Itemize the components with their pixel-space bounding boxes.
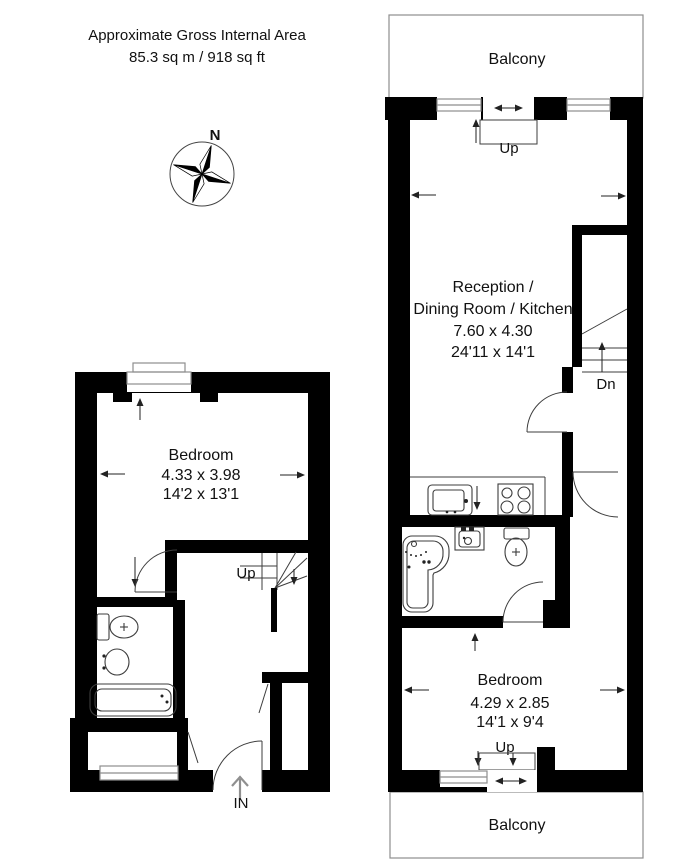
compass-north-label: N [210,127,221,144]
upper-bedroom-size-imperial: 14'1 x 9'4 [476,714,544,731]
header: Approximate Gross Internal Area 85.3 sq … [88,27,306,66]
reception-size-imperial: 24'11 x 14'1 [451,344,535,361]
floor-plan-page: Approximate Gross Internal Area 85.3 sq … [0,0,684,862]
balcony-top-label: Balcony [489,51,546,68]
balcony-door-up-label: Up [499,140,518,157]
balcony-door-top [476,97,537,144]
upper-bedroom-labels: Bedroom 4.29 x 2.85 14'1 x 9'4 Up [470,672,549,756]
gross-area-title: Approximate Gross Internal Area [88,27,306,44]
lower-basin [102,649,129,675]
reception-name-line1: Reception / [453,279,534,296]
upper-bath [403,536,449,612]
entrance-door [213,741,262,792]
lower-toilet [97,614,138,640]
lower-bedroom-size-imperial: 14'2 x 13'1 [163,486,239,503]
upper-floor-plan: Balcony Balcony [385,15,643,858]
stairs-down-label: Dn [596,376,615,393]
kitchen-sink [428,485,472,515]
upper-toilet [504,528,529,566]
reception-window-right [567,97,610,120]
closet-doors [188,684,268,763]
upper-bedroom-window [440,770,487,787]
lower-stairs-up-label: Up [236,565,255,582]
upper-bedroom-name: Bedroom [478,672,543,689]
reception-size-metric: 7.60 x 4.30 [453,323,532,340]
compass-star-icon [174,146,231,203]
lower-bedroom-labels: Bedroom 4.33 x 3.98 14'2 x 13'1 [161,447,240,503]
hall-window [100,766,178,780]
lower-bathtub [90,684,176,716]
upper-bedroom-size-metric: 4.29 x 2.85 [470,695,549,712]
floor-plan-drawing: Approximate Gross Internal Area 85.3 sq … [0,0,684,862]
reception-name-line2: Dining Room / Kitchen [413,301,572,318]
upper-bath-door [503,582,543,622]
kitchen-stove [498,484,533,515]
lower-stairs [240,552,307,632]
reception-window-left [437,97,481,120]
balcony-bottom-label: Balcony [489,817,546,834]
reception-dimension-arrows [412,195,625,196]
lower-bedroom-name: Bedroom [169,447,234,464]
upper-basin [455,527,484,550]
reception-labels: Reception / Dining Room / Kitchen 7.60 x… [413,279,572,361]
compass-rose: N [170,127,234,206]
upper-bedroom-balcony-door [479,753,537,792]
bay-window [127,363,191,392]
stair-hall-door [527,392,567,432]
upper-stairs-down [582,309,627,372]
rear-hall-door [573,472,618,517]
lower-bedroom-size-metric: 4.33 x 3.98 [161,467,240,484]
lower-floor-plan: IN Bedroom 4.33 x 3.98 14'2 x 13'1 [70,363,330,812]
entrance-label: IN [234,795,249,812]
gross-area-value: 85.3 sq m / 918 sq ft [129,49,266,66]
